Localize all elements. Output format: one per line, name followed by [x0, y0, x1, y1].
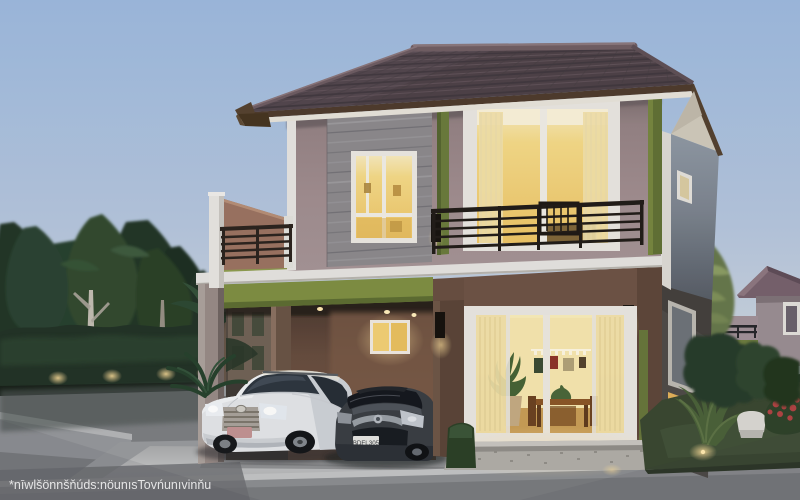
svg-text:*nīwlšönnšňúds:nöunısTovńunıvi: *nīwlšönnšňúds:nöunısTovńunıvinňu — [9, 478, 211, 492]
